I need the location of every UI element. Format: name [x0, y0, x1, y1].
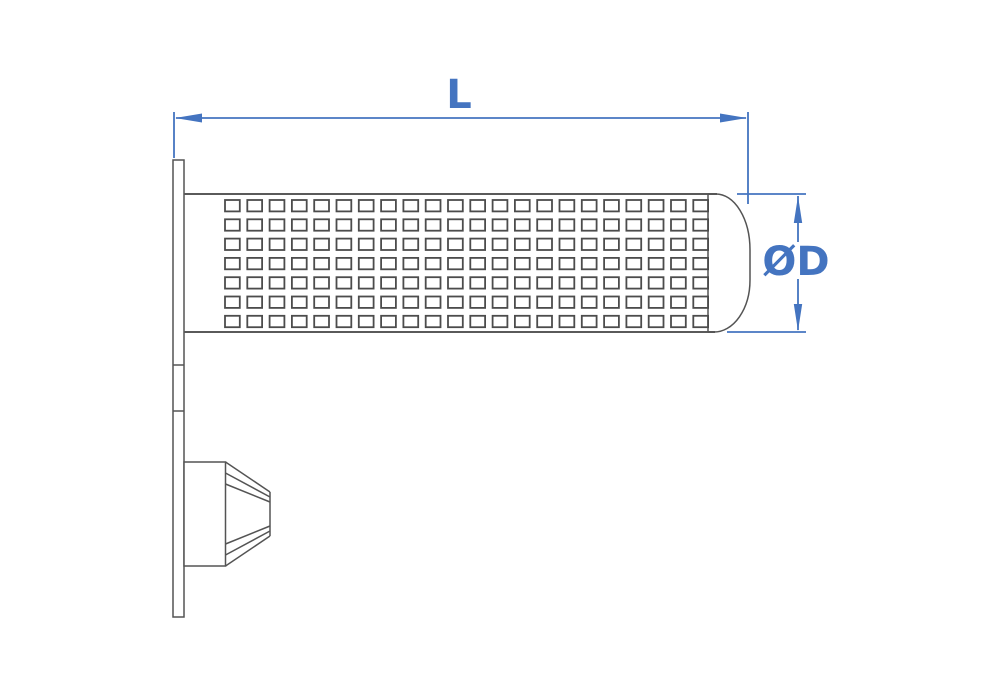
perforation-hole	[560, 239, 575, 250]
perforation-hole	[426, 239, 441, 250]
perforation-hole	[560, 277, 575, 288]
perforation-hole	[314, 277, 329, 288]
perforation-hole	[582, 316, 597, 327]
sleeve-body	[184, 194, 750, 332]
perforation-hole	[381, 239, 396, 250]
perforated-anchor-sleeve-drawing: L ØD	[0, 0, 1000, 700]
perforation-hole	[493, 316, 508, 327]
perforation-hole	[626, 239, 641, 250]
technical-drawing-canvas: L ØD	[0, 0, 1000, 700]
perforation-hole	[381, 316, 396, 327]
perforation-hole	[560, 297, 575, 308]
perforation-hole	[225, 277, 240, 288]
perforation-hole	[537, 258, 552, 269]
perforation-hole	[626, 219, 641, 230]
perforation-hole	[225, 297, 240, 308]
perforation-hole	[270, 258, 285, 269]
perforation-hole	[515, 219, 530, 230]
perforation-hole	[403, 239, 418, 250]
perforation-hole	[560, 200, 575, 211]
perforation-hole	[403, 297, 418, 308]
perforation-hole	[337, 297, 352, 308]
perforation-hole	[247, 297, 262, 308]
perforation-hole	[560, 219, 575, 230]
perforation-hole	[693, 219, 708, 230]
perforation-hole	[292, 316, 307, 327]
perforation-hole	[426, 297, 441, 308]
perforation-hole	[247, 239, 262, 250]
perforation-hole	[292, 239, 307, 250]
perforation-hole	[515, 316, 530, 327]
perforation-hole	[649, 277, 664, 288]
perforation-hole	[359, 297, 374, 308]
perforation-hole	[649, 219, 664, 230]
perforation-hole	[649, 200, 664, 211]
flange	[173, 160, 184, 617]
expansion-cone	[184, 462, 270, 566]
perforation-hole	[270, 200, 285, 211]
perforation-hole	[381, 277, 396, 288]
perforation-hole	[448, 239, 463, 250]
perforation-hole	[693, 258, 708, 269]
perforation-hole	[493, 239, 508, 250]
perforation-hole	[403, 258, 418, 269]
perforation-hole	[515, 277, 530, 288]
perforation-hole	[515, 297, 530, 308]
perforation-hole	[515, 200, 530, 211]
perforation-hole	[470, 277, 485, 288]
perforation-hole	[403, 200, 418, 211]
perforation-hole	[426, 200, 441, 211]
perforation-hole	[359, 219, 374, 230]
perforation-hole	[314, 316, 329, 327]
perforation-hole	[515, 239, 530, 250]
perforation-hole	[381, 258, 396, 269]
perforation-hole	[604, 277, 619, 288]
perforation-hole	[693, 316, 708, 327]
perforation-hole	[337, 316, 352, 327]
perforation-hole	[403, 316, 418, 327]
perforation-hole	[560, 258, 575, 269]
perforation-hole	[292, 277, 307, 288]
perforation-hole	[582, 219, 597, 230]
perforation-hole	[537, 297, 552, 308]
perforation-hole	[537, 219, 552, 230]
perforation-hole	[582, 200, 597, 211]
perforation-hole	[292, 297, 307, 308]
perforation-grid	[225, 200, 708, 327]
perforation-hole	[470, 239, 485, 250]
perforation-hole	[582, 258, 597, 269]
perforation-hole	[247, 277, 262, 288]
perforation-hole	[337, 277, 352, 288]
perforation-hole	[671, 219, 686, 230]
perforation-hole	[671, 239, 686, 250]
perforation-hole	[626, 297, 641, 308]
perforation-hole	[225, 239, 240, 250]
perforation-hole	[359, 258, 374, 269]
perforation-hole	[671, 200, 686, 211]
perforation-hole	[426, 316, 441, 327]
perforation-hole	[225, 219, 240, 230]
perforation-hole	[381, 219, 396, 230]
perforation-hole	[582, 277, 597, 288]
perforation-hole	[381, 297, 396, 308]
perforation-hole	[314, 258, 329, 269]
cone-base-block	[184, 462, 226, 566]
diameter-dimension-label: ØD	[762, 239, 829, 285]
perforation-hole	[649, 297, 664, 308]
perforation-hole	[604, 258, 619, 269]
perforation-hole	[270, 219, 285, 230]
perforation-hole	[247, 200, 262, 211]
perforation-hole	[493, 258, 508, 269]
perforation-hole	[671, 316, 686, 327]
perforation-hole	[560, 316, 575, 327]
perforation-hole	[225, 316, 240, 327]
perforation-hole	[448, 200, 463, 211]
perforation-hole	[448, 219, 463, 230]
arrowhead-right-icon	[720, 114, 747, 123]
perforation-hole	[582, 297, 597, 308]
arrowhead-up-icon	[794, 196, 802, 223]
perforation-hole	[537, 316, 552, 327]
sleeve-end-cap	[708, 194, 750, 332]
perforation-hole	[247, 316, 262, 327]
perforation-hole	[359, 200, 374, 211]
perforation-hole	[426, 258, 441, 269]
perforation-hole	[448, 297, 463, 308]
perforation-hole	[337, 219, 352, 230]
perforation-hole	[337, 200, 352, 211]
perforation-hole	[671, 277, 686, 288]
perforation-hole	[493, 219, 508, 230]
perforation-hole	[626, 200, 641, 211]
perforation-hole	[693, 297, 708, 308]
perforation-hole	[626, 277, 641, 288]
perforation-hole	[270, 316, 285, 327]
dimension-length: L	[174, 72, 748, 204]
perforation-hole	[292, 200, 307, 211]
perforation-hole	[470, 219, 485, 230]
perforation-hole	[604, 297, 619, 308]
perforation-hole	[359, 316, 374, 327]
perforation-hole	[604, 200, 619, 211]
perforation-hole	[604, 219, 619, 230]
perforation-hole	[693, 277, 708, 288]
perforation-hole	[537, 239, 552, 250]
perforation-hole	[671, 258, 686, 269]
perforation-hole	[403, 277, 418, 288]
perforation-hole	[493, 297, 508, 308]
perforation-hole	[649, 239, 664, 250]
perforation-hole	[270, 297, 285, 308]
perforation-hole	[470, 258, 485, 269]
perforation-hole	[448, 258, 463, 269]
perforation-hole	[604, 316, 619, 327]
perforation-hole	[225, 258, 240, 269]
perforation-hole	[292, 219, 307, 230]
perforation-hole	[337, 239, 352, 250]
perforation-hole	[470, 297, 485, 308]
perforation-hole	[537, 277, 552, 288]
perforation-hole	[292, 258, 307, 269]
arrowhead-left-icon	[175, 114, 202, 123]
perforation-hole	[314, 297, 329, 308]
perforation-hole	[359, 239, 374, 250]
perforation-hole	[626, 316, 641, 327]
perforation-hole	[314, 200, 329, 211]
perforation-hole	[693, 200, 708, 211]
perforation-hole	[247, 258, 262, 269]
perforation-hole	[359, 277, 374, 288]
perforation-hole	[225, 200, 240, 211]
perforation-hole	[493, 277, 508, 288]
perforation-hole	[470, 316, 485, 327]
arrowhead-down-icon	[794, 304, 802, 331]
perforation-hole	[337, 258, 352, 269]
perforation-hole	[493, 200, 508, 211]
perforation-hole	[314, 219, 329, 230]
perforation-hole	[270, 277, 285, 288]
perforation-hole	[537, 200, 552, 211]
perforation-hole	[426, 277, 441, 288]
perforation-hole	[448, 277, 463, 288]
perforation-hole	[649, 316, 664, 327]
perforation-hole	[671, 297, 686, 308]
flange-plate	[173, 160, 184, 617]
perforation-hole	[247, 219, 262, 230]
perforation-hole	[270, 239, 285, 250]
perforation-hole	[604, 239, 619, 250]
perforation-hole	[649, 258, 664, 269]
perforation-hole	[626, 258, 641, 269]
perforation-hole	[693, 239, 708, 250]
perforation-hole	[381, 200, 396, 211]
perforation-hole	[426, 219, 441, 230]
perforation-hole	[448, 316, 463, 327]
length-dimension-label: L	[446, 72, 472, 118]
perforation-hole	[515, 258, 530, 269]
perforation-hole	[582, 239, 597, 250]
perforation-hole	[470, 200, 485, 211]
perforation-hole	[314, 239, 329, 250]
perforation-hole	[403, 219, 418, 230]
